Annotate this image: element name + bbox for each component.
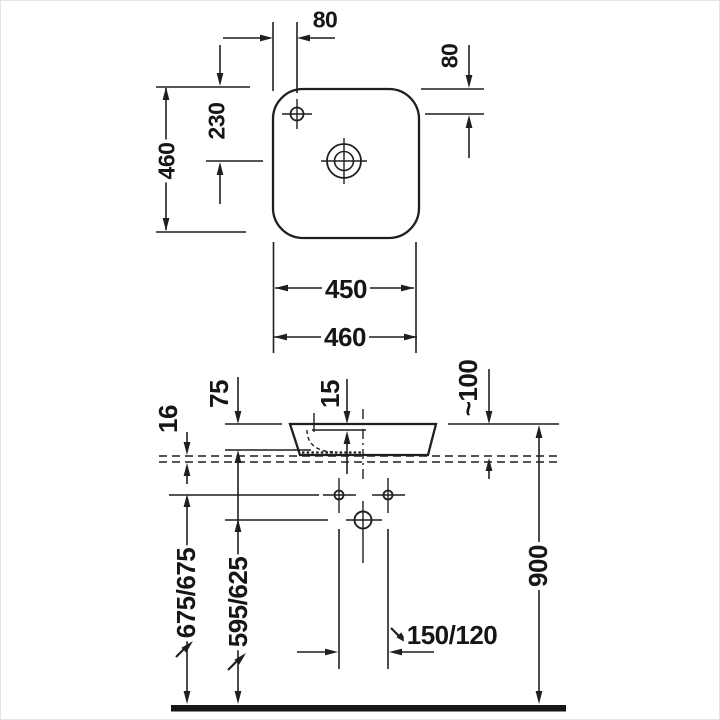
- drawing-canvas: 80 80 460 230 450 460 75 15 16 ~100 675/…: [0, 0, 720, 720]
- dim-elev-counter-thickness: 16: [154, 402, 182, 436]
- dim-elev-outlet-height-a: 675/675: [172, 545, 200, 641]
- plan-view: [156, 22, 484, 353]
- dim-elev-rim-height: 900: [524, 542, 552, 590]
- dim-plan-depth-overall: 460: [155, 140, 180, 183]
- adjustable-arrow-675: [176, 639, 195, 657]
- dim-elev-above-counter: ~100: [454, 357, 482, 420]
- dim-elev-supply-spacing: 150/120: [404, 621, 500, 649]
- dim-plan-faucet-offset-x: 80: [310, 8, 341, 33]
- dim-plan-faucet-to-drain: 230: [205, 100, 230, 143]
- dim-elev-rim-inset: 15: [316, 377, 344, 411]
- arrowhead: [260, 35, 273, 42]
- dim-plan-width-overall: 460: [321, 323, 369, 351]
- dim-elev-bowl-depth: 75: [205, 377, 233, 411]
- elevation-view: [159, 369, 566, 712]
- dim-plan-width-inner: 450: [322, 275, 370, 303]
- floor-line: [171, 705, 566, 712]
- dim-elev-outlet-height-b: 595/625: [224, 554, 252, 650]
- dim-plan-faucet-offset-y: 80: [438, 41, 463, 72]
- basin-outline-plan: [273, 89, 419, 238]
- technical-drawing-lines: [1, 1, 720, 720]
- inner-bowl-dashed: [307, 430, 333, 452]
